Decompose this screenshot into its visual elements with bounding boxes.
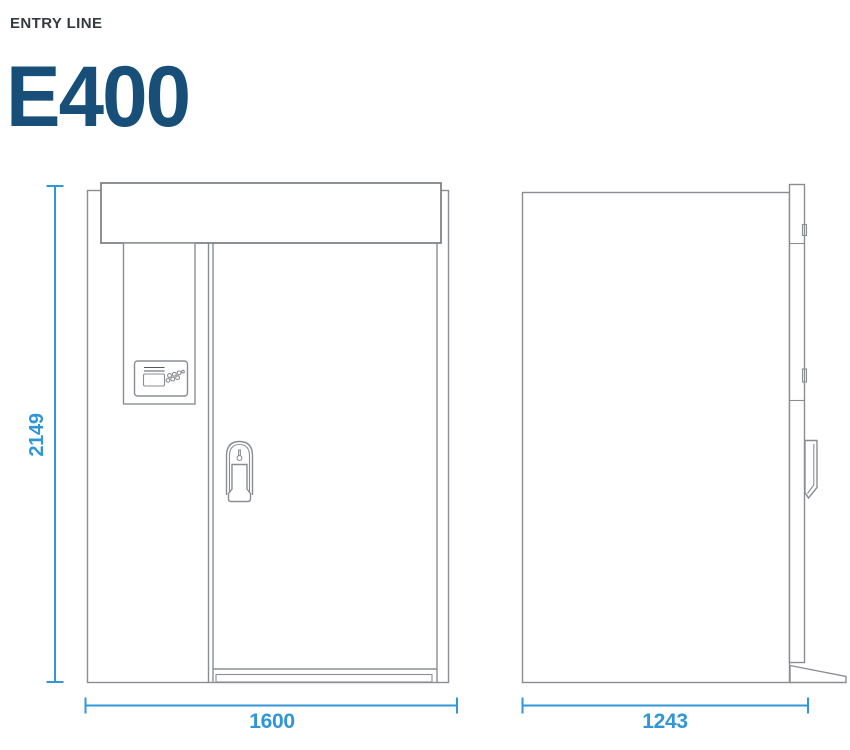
handle-grip	[229, 465, 251, 502]
side-view	[523, 185, 847, 683]
dimension-depth-value: 1243	[605, 711, 725, 732]
height-dimension-line	[47, 186, 64, 682]
card-reader-panel	[135, 361, 188, 396]
datasheet-page: ENTRY LINE E400	[0, 0, 850, 750]
dimension-width-value: 1600	[212, 711, 332, 732]
side-handle-icon	[805, 441, 817, 499]
front-view	[88, 183, 449, 683]
dimension-height-value: 2149	[27, 390, 47, 480]
side-body-outline	[523, 193, 790, 683]
technical-drawing	[0, 0, 850, 750]
header-bar	[101, 183, 441, 243]
door-edge-profile	[790, 185, 805, 663]
floor-ramp	[790, 666, 846, 683]
